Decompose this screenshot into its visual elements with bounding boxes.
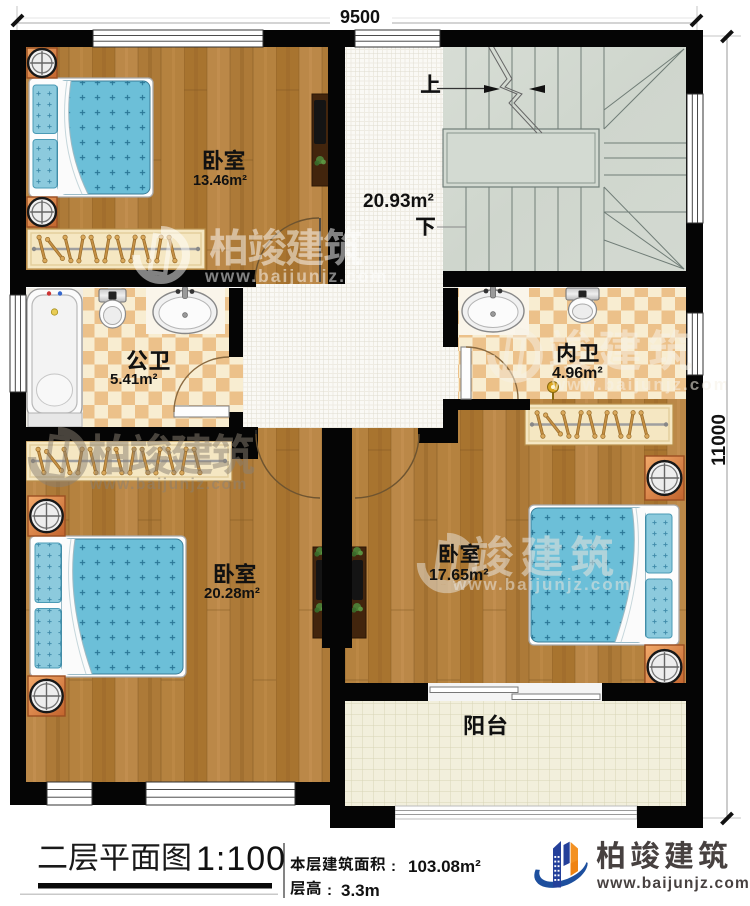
svg-text:4.96m²: 4.96m² <box>552 365 603 382</box>
svg-text:11000: 11000 <box>709 414 730 466</box>
svg-text:20.93m²: 20.93m² <box>363 191 434 212</box>
svg-text:www.baijunjz.com: www.baijunjz.com <box>596 875 750 892</box>
svg-text:1:100: 1:100 <box>196 840 286 878</box>
svg-text:www.baijunjz.com: www.baijunjz.com <box>89 476 248 493</box>
svg-text:5.41m²: 5.41m² <box>110 371 158 388</box>
svg-text:103.08m²: 103.08m² <box>408 857 481 876</box>
svg-text:9500: 9500 <box>340 7 380 27</box>
svg-text:20.28m²: 20.28m² <box>204 585 260 602</box>
svg-text::: : <box>391 858 396 875</box>
svg-text:17.65m²: 17.65m² <box>429 567 489 584</box>
svg-text::: : <box>327 882 332 899</box>
svg-text:3.3m: 3.3m <box>341 881 380 900</box>
svg-text:13.46m²: 13.46m² <box>193 173 247 189</box>
svg-text:www.baijunjz.com: www.baijunjz.com <box>204 266 388 286</box>
